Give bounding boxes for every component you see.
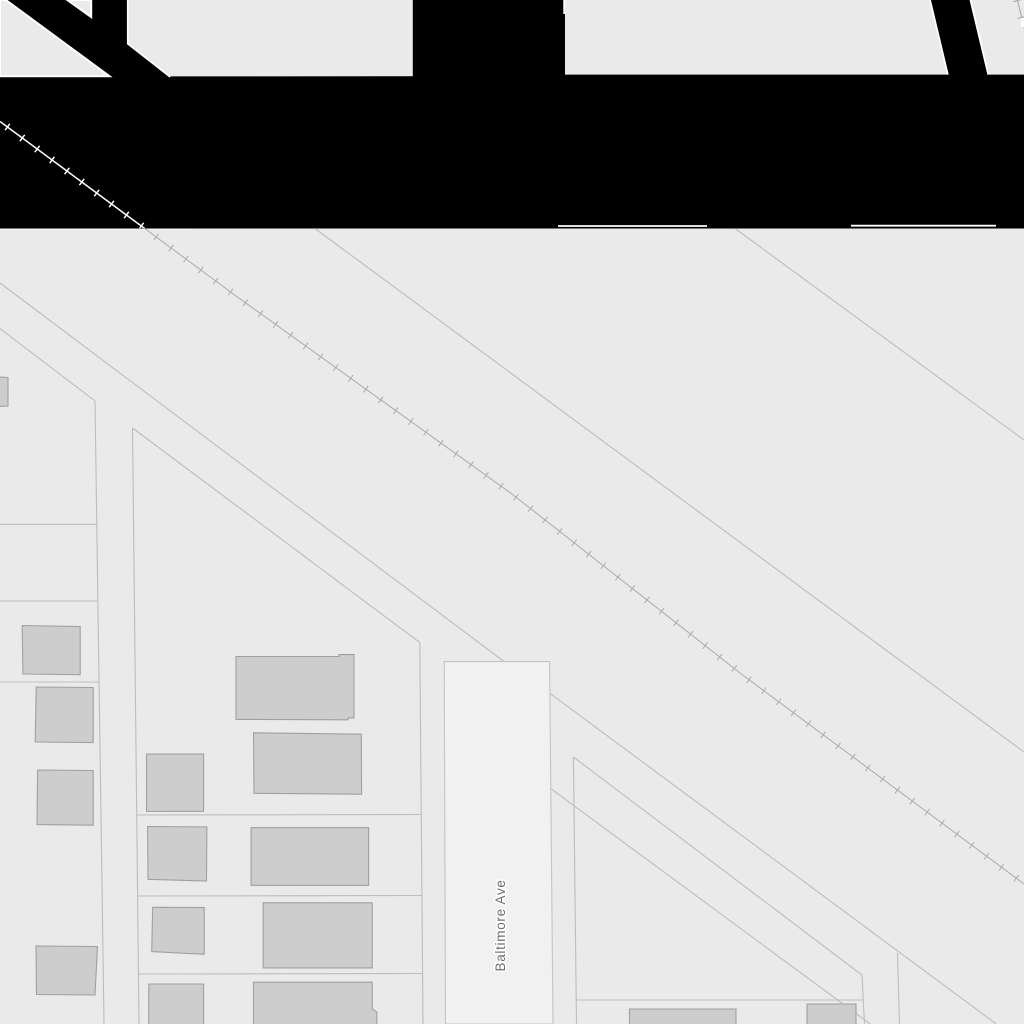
svg-text:Baltimore Ave: Baltimore Ave — [493, 879, 508, 971]
